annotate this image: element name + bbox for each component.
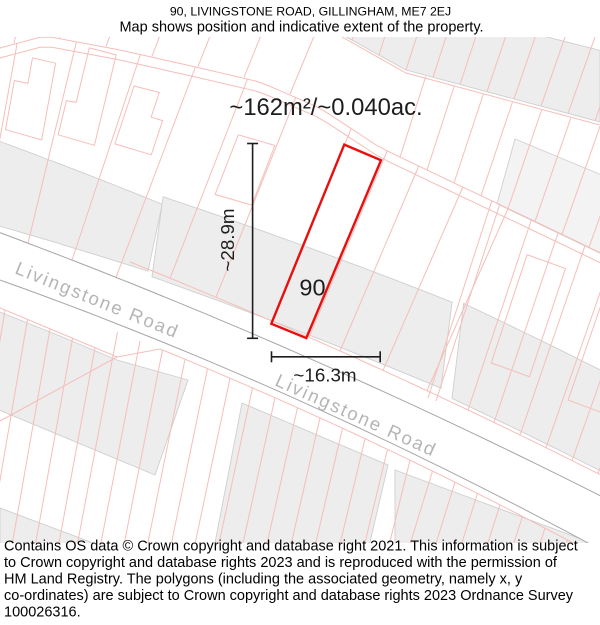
- svg-text:co-ordinates) are subject to C: co-ordinates) are subject to Crown copyr…: [4, 588, 574, 604]
- svg-text:HM Land Registry. The polygons: HM Land Registry. The polygons (includin…: [4, 571, 523, 587]
- svg-text:90, LIVINGSTONE ROAD, GILLINGH: 90, LIVINGSTONE ROAD, GILLINGHAM, ME7 2E…: [170, 4, 451, 18]
- svg-text:100026316.: 100026316.: [4, 604, 81, 620]
- svg-text:Map shows position and indicat: Map shows position and indicative extent…: [119, 19, 483, 35]
- svg-text:Contains OS data © Crown copyr: Contains OS data © Crown copyright and d…: [4, 538, 578, 554]
- svg-text:to Crown copyright and databas: to Crown copyright and database rights 2…: [4, 555, 558, 571]
- svg-text:~162m²/~0.040ac.: ~162m²/~0.040ac.: [229, 94, 422, 121]
- svg-text:~28.9m: ~28.9m: [217, 208, 238, 271]
- svg-text:~16.3m: ~16.3m: [293, 364, 356, 385]
- svg-text:90: 90: [299, 275, 325, 301]
